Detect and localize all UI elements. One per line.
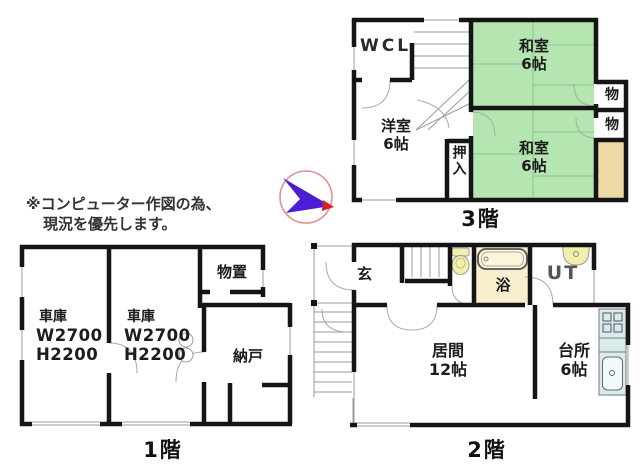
toilet-icon <box>452 248 469 275</box>
room-label-kitchen: 台所 6帖 <box>538 342 610 380</box>
room-label-garage-right: 車庫 W2700 H2200 <box>124 309 191 364</box>
disclaimer-note: ※コンピューター作図の為、 現況を優先します。 <box>26 194 221 235</box>
living-size: 12帖 <box>378 361 518 380</box>
washitsu-bottom-name: 和室 <box>475 140 593 158</box>
room-label-garage-left: 車庫 W2700 H2200 <box>36 309 103 364</box>
room-label-yoshitsu: 洋室 6帖 <box>352 118 440 153</box>
washitsu-top-size: 6帖 <box>475 56 593 74</box>
garage-left-height: H2200 <box>36 345 103 364</box>
room-label-washitsu-top: 和室 6帖 <box>475 38 593 73</box>
bathtub-icon <box>478 249 527 269</box>
room-label-utility: UT <box>533 262 593 284</box>
washitsu-top-name: 和室 <box>475 38 593 56</box>
disclaimer-line1: ※コンピューター作図の為、 <box>26 194 221 214</box>
yoshitsu-size: 6帖 <box>352 136 440 154</box>
room-label-bath: 浴 <box>476 277 530 295</box>
garage-left-width: W2700 <box>36 326 103 345</box>
room-label-genkan: 玄 <box>357 266 372 284</box>
balcony-fill <box>598 142 626 200</box>
floor3-title: 3階 <box>426 203 536 233</box>
disclaimer-line2: 現況を優先します。 <box>26 214 221 234</box>
room-label-storage-bottom: 物 <box>597 117 627 134</box>
compass-icon <box>280 171 334 223</box>
room-label-washitsu-bottom: 和室 6帖 <box>475 140 593 175</box>
yoshitsu-name: 洋室 <box>352 118 440 136</box>
room-label-oshiire: 押入 <box>450 145 467 177</box>
room-label-wcl: WCL <box>360 36 411 56</box>
washitsu-bottom-size: 6帖 <box>475 158 593 176</box>
room-label-nando: 納戸 <box>217 348 279 366</box>
garage-right-name: 車庫 <box>124 309 191 326</box>
kitchen-size: 6帖 <box>538 361 610 380</box>
garage-left-name: 車庫 <box>36 309 103 326</box>
porch-post <box>311 243 317 249</box>
kitchen-name: 台所 <box>538 342 610 361</box>
floorplan-canvas: ※コンピューター作図の為、 現況を優先します。 WCL 洋室 6帖 和室 6帖 … <box>0 0 640 464</box>
porch-post <box>311 300 317 306</box>
floor2-title: 2階 <box>432 434 542 464</box>
floor1-title: 1階 <box>108 434 218 464</box>
room-label-living: 居間 12帖 <box>378 342 518 380</box>
room-label-storage-top: 物 <box>597 87 627 104</box>
garage-right-height: H2200 <box>124 345 191 364</box>
room-label-monooki: 物置 <box>201 264 263 282</box>
living-name: 居間 <box>378 342 518 361</box>
garage-right-width: W2700 <box>124 326 191 345</box>
